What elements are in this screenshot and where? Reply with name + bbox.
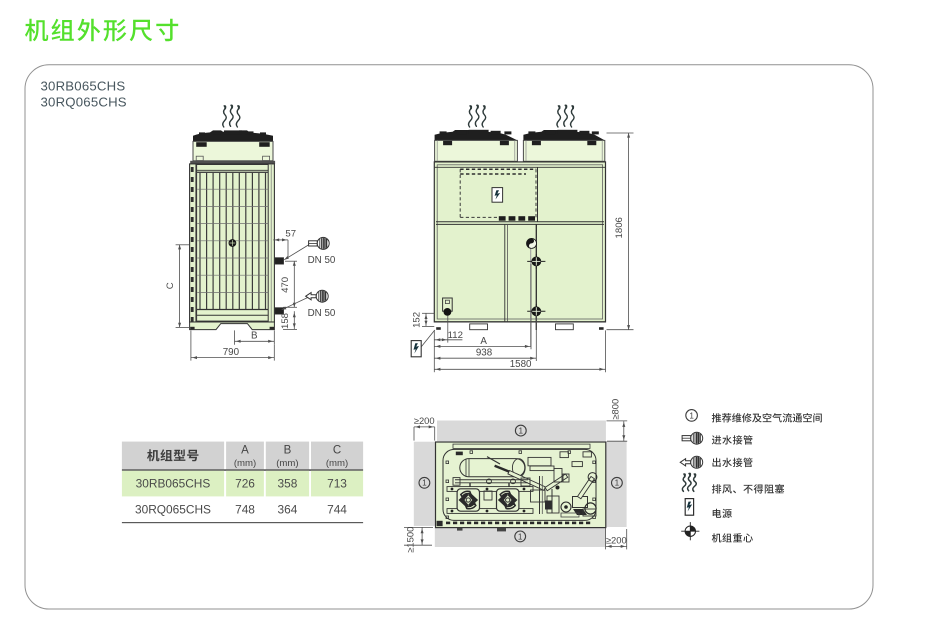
svg-text:364: 364 — [277, 502, 297, 516]
svg-text:152: 152 — [411, 312, 422, 328]
svg-text:B: B — [284, 445, 292, 457]
svg-text:C: C — [333, 445, 341, 457]
svg-text:470: 470 — [280, 277, 291, 293]
svg-text:(mm): (mm) — [276, 458, 298, 469]
svg-text:30RQ065CHS: 30RQ065CHS — [135, 502, 211, 516]
svg-text:30RQ065CHS: 30RQ065CHS — [41, 94, 127, 109]
svg-text:30RB065CHS: 30RB065CHS — [41, 79, 126, 94]
svg-text:158: 158 — [280, 313, 291, 329]
svg-text:≥200: ≥200 — [606, 534, 627, 545]
svg-text:1: 1 — [615, 479, 620, 488]
svg-text:≥200: ≥200 — [414, 415, 435, 426]
svg-text:1: 1 — [422, 479, 427, 488]
svg-text:30RB065CHS: 30RB065CHS — [136, 476, 211, 490]
svg-text:726: 726 — [235, 476, 255, 490]
svg-text:A: A — [480, 336, 487, 347]
svg-text:1: 1 — [519, 427, 524, 436]
svg-text:(mm): (mm) — [326, 458, 348, 469]
svg-text:DN 50: DN 50 — [308, 255, 336, 266]
svg-text:938: 938 — [476, 348, 493, 359]
svg-text:1: 1 — [689, 411, 694, 420]
svg-text:B: B — [251, 331, 258, 342]
svg-text:≥800: ≥800 — [610, 399, 621, 420]
svg-text:≥1500: ≥1500 — [405, 527, 416, 553]
svg-text:(mm): (mm) — [234, 458, 256, 469]
svg-text:C: C — [165, 282, 176, 289]
svg-text:1806: 1806 — [614, 217, 625, 238]
svg-text:DN 50: DN 50 — [308, 308, 336, 319]
svg-text:1580: 1580 — [510, 359, 532, 370]
svg-text:358: 358 — [277, 476, 297, 490]
svg-text:744: 744 — [327, 502, 347, 516]
svg-text:748: 748 — [235, 502, 255, 516]
svg-text:112: 112 — [448, 330, 463, 341]
svg-text:A: A — [241, 445, 249, 457]
svg-text:713: 713 — [327, 476, 347, 490]
svg-text:57: 57 — [285, 229, 296, 240]
svg-text:790: 790 — [223, 347, 240, 358]
svg-text:1: 1 — [518, 532, 523, 541]
